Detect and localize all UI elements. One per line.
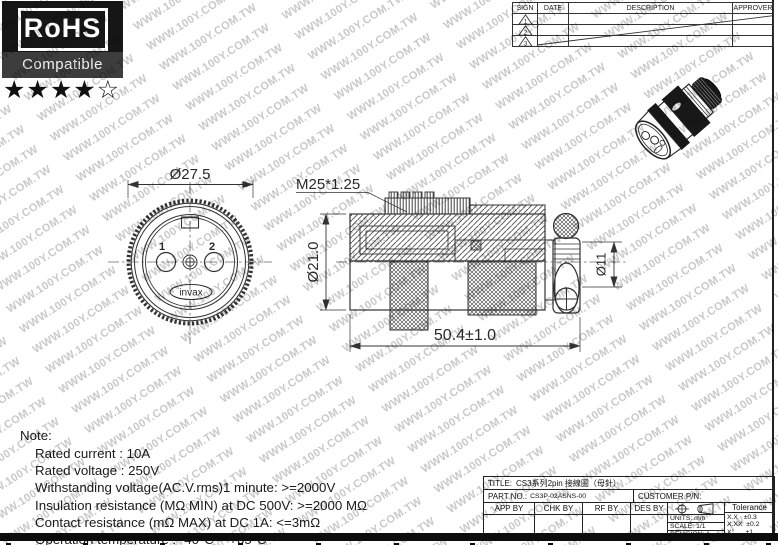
scale-value: SCALE: 1/1 [668, 523, 724, 531]
title-block: TITLE: CS3系列2pin 接線圖（母針） PART NO.: CS3P-… [483, 476, 775, 534]
svg-text:Ø27.5: Ø27.5 [170, 166, 211, 183]
dimension-overall-length: 50.4±1.0 [350, 314, 580, 352]
projection-symbol-icon [671, 503, 721, 515]
des-by-header: DES BY [631, 503, 667, 515]
chk-by-header: CHK BY [535, 503, 582, 515]
notes-heading: Note: [20, 428, 367, 443]
star-empty: ☆ [97, 76, 120, 104]
note-line: Rated current : 10A [35, 445, 367, 462]
sheet-right-border [772, 0, 774, 534]
revision-triangle-icon: 2 [518, 25, 533, 35]
knurled-ring-2 [468, 262, 536, 315]
part-no-value: CS3P-02ASNS-00 [530, 493, 586, 500]
note-line: Contact resistance (mΩ MAX) at DC 1A: <=… [35, 514, 367, 531]
revision-row: 3 [513, 36, 773, 46]
tolerance-line: X.X ±0.3 [725, 514, 774, 521]
svg-text:M25*1.25: M25*1.25 [296, 176, 360, 193]
title-label: TITLE: [488, 479, 512, 488]
pin-1-label: 1 [159, 241, 165, 253]
thread-section [385, 198, 470, 214]
units-value: UNITS: mm [668, 515, 724, 523]
header-date: DATE [538, 3, 569, 13]
rohs-title: RoHS [18, 8, 108, 51]
svg-text:2: 2 [523, 29, 527, 35]
header-sign: SIGN [513, 3, 538, 13]
header-approver: APPROVER [733, 3, 773, 13]
tolerance-header: Tolerance [725, 503, 774, 513]
isometric-connector-illustration [627, 66, 732, 167]
note-line: Withstanding voltage(AC.V.rms)1 minute: … [35, 479, 367, 496]
knurled-ring-1 [390, 262, 428, 330]
datasheet-page: 1 2 invax Ø27.5 [0, 0, 778, 545]
revision-header-row: SIGN DATE DESCRIPTION APPROVER [513, 3, 773, 14]
svg-text:Ø21.0: Ø21.0 [305, 242, 322, 283]
rf-by-header: RF BY [583, 503, 630, 515]
stars-filled: ★★★★ [3, 76, 97, 104]
revision-row: 2 [513, 25, 773, 36]
part-no-label: PART NO.: [488, 492, 527, 501]
app-by-header: APP BY [484, 503, 534, 515]
center-screw [183, 255, 197, 269]
cable-gland [545, 214, 580, 314]
seal-ring [471, 241, 481, 250]
pin-2-label: 2 [209, 241, 215, 253]
note-line: Insulation resistance (MΩ MIN) at DC 500… [35, 497, 367, 514]
title-value: CS3系列2pin 接線圖（母針） [516, 478, 621, 489]
front-view: 1 2 invax Ø27.5 [108, 166, 272, 344]
header-description: DESCRIPTION [569, 3, 733, 13]
revision-row: 1 [513, 14, 773, 25]
svg-text:50.4±1.0: 50.4±1.0 [434, 327, 496, 344]
customer-pn-label: CUSTOMER P/N: [638, 492, 701, 501]
title-row: TITLE: CS3系列2pin 接線圖（母針） [484, 477, 774, 490]
rohs-badge: RoHS Compatible [2, 1, 123, 78]
rating-stars: ★★★★☆ [3, 77, 120, 104]
approval-grid: APP BY CHK BY RF BY DES BY UNITS: mm SCA… [484, 503, 774, 533]
revision-table: SIGN DATE DESCRIPTION APPROVER 1 2 [512, 2, 774, 47]
side-section-view: M25*1.25 Ø21.0 Ø11 50.4±1.0 [296, 176, 628, 352]
note-line: Rated voltage : 250V [35, 462, 367, 479]
tolerance-line: X.XX ±0.2 [725, 521, 774, 528]
part-row: PART NO.: CS3P-02ASNS-00 CUSTOMER P/N: [484, 490, 774, 503]
sheet-bottom-border [0, 533, 778, 541]
rohs-subtitle: Compatible [2, 52, 123, 78]
notes-section: Note: Rated current : 10A Rated voltage … [20, 428, 367, 545]
svg-text:1: 1 [523, 18, 527, 24]
revision-triangle-icon: 1 [518, 14, 533, 24]
svg-text:Ø11: Ø11 [594, 253, 609, 277]
dimension-front-diameter: Ø27.5 [128, 166, 253, 198]
svg-text:3: 3 [523, 40, 527, 46]
dimension-cable-diameter: Ø11 [582, 242, 622, 287]
brand-logo-text: invax [179, 288, 202, 299]
revision-triangle-icon: 3 [518, 36, 533, 46]
